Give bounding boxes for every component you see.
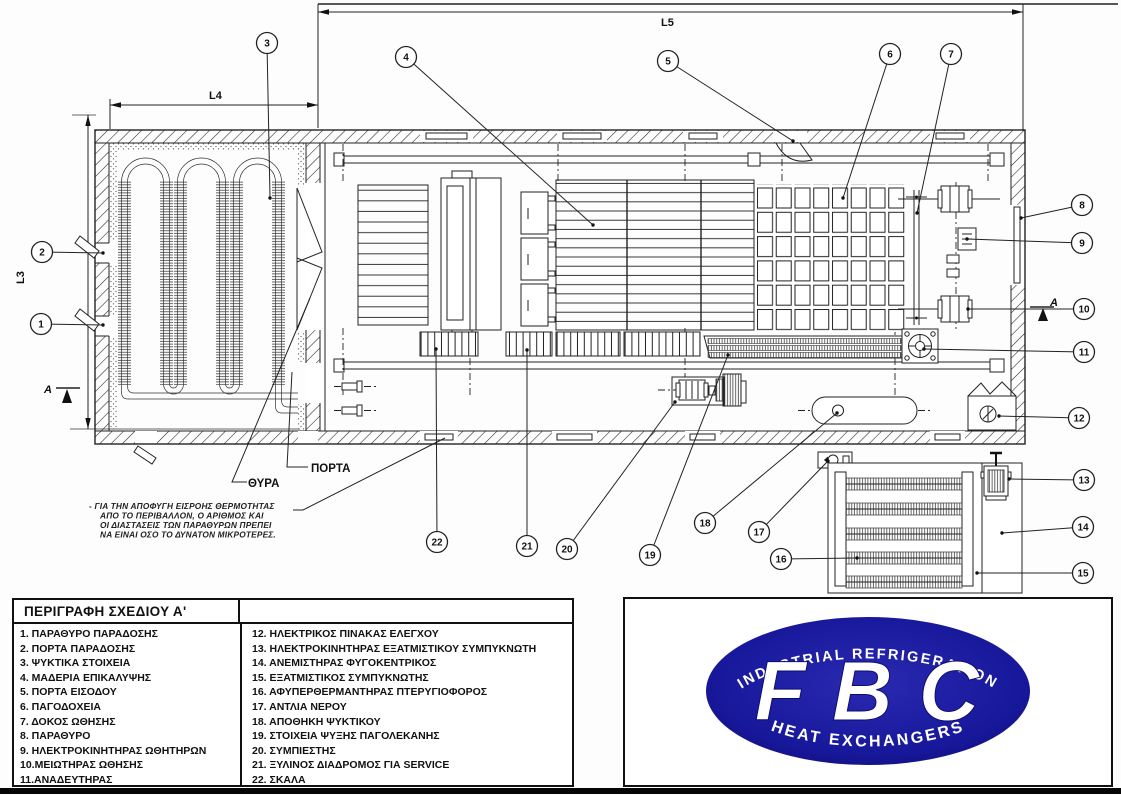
- cooling-coils: [118, 158, 298, 413]
- legend-title: ΠΕΡΙΓΡΑΦΗ ΣΧΕΔΙΟΥ Α': [14, 600, 240, 622]
- callout-number: 19: [644, 551, 656, 562]
- legend-item: 11.ΑΝΑΔΕΥΤΗΡΑΣ: [20, 773, 240, 788]
- legend-item: 18. ΑΠΟΘΗΚΗ ΨΥΚΤΙΚΟΥ: [252, 715, 572, 730]
- legend-item: 17. ΑΝΤΛΙΑ ΝΕΡΟΥ: [252, 700, 572, 715]
- callout-number: 17: [753, 528, 765, 539]
- coil-tubes: [122, 158, 299, 413]
- legend-body: 1. ΠΑΡΑΘΥΡΟ ΠΑΡΑΔΟΣΗΣ2. ΠΟΡΤΑ ΠΑΡΑΔΟΣΗΣ3…: [14, 624, 572, 787]
- legend-item: 2. ΠΟΡΤΑ ΠΑΡΑΔΟΣΗΣ: [20, 642, 240, 657]
- legend-item: 1. ΠΑΡΑΘΥΡΟ ΠΑΡΑΔΟΣΗΣ: [20, 627, 240, 642]
- coil-fin-columns: [118, 180, 285, 385]
- legend-right-list: 12. ΗΛΕΚΤΡΙΚΟΣ ΠΙΝΑΚΑΣ ΕΛΕΓΧΟΥ13. ΗΛΕΚΤΡ…: [242, 624, 572, 787]
- callout-number: 7: [948, 50, 954, 61]
- legend-item: 16. ΑΦΥΠΕΡΘΕΡΜΑΝΤΗΡΑΣ ΠΤΕΡΥΓΙΟΦΟΡΟΣ: [252, 685, 572, 700]
- legend-item: 3. ΨΥΚΤΙΚΑ ΣΤΟΙΧΕΙΑ: [20, 656, 240, 671]
- callout-number: 10: [1078, 305, 1090, 316]
- callout-number: 6: [887, 50, 893, 61]
- anchor-pins: [334, 381, 376, 416]
- ice-container-grid: [755, 184, 905, 332]
- legend-item: 22. ΣΚΑΛΑ: [252, 773, 572, 788]
- callout-number: 22: [431, 538, 443, 549]
- legend-item: 10.ΜΕΙΩΤΗΡΑΣ ΩΘΗΣΗΣ: [20, 758, 240, 773]
- legend-item: 5. ΠΟΡΤΑ ΕΙΣΟΔΟΥ: [20, 685, 240, 700]
- callout-number: 18: [699, 519, 711, 530]
- technical-drawing: L5 L4 L3: [0, 0, 1121, 596]
- condenser-motor: [981, 452, 1011, 500]
- tall-frame: [441, 171, 501, 337]
- callout-number: 8: [1079, 201, 1085, 212]
- legend-item: 21. ΞΥΛΙΝΟΣ ΔΙΑΔΡΟΜΟΣ ΓΙΑ SERVICE: [252, 758, 572, 773]
- hopper-boxes: [521, 192, 555, 326]
- callout-number: 11: [1079, 348, 1090, 359]
- service-walkway: [420, 332, 700, 356]
- ice-pan-cooling-strip: [704, 336, 903, 358]
- fbc-logo: INDUSTRIAL REFRIGERATION FBC HEAT EXCHAN…: [625, 599, 1111, 785]
- annotation-labels: ΘΥΡΑ ΠΟΡΤΑ - ΓΙΑ ΤΗΝ ΑΠΟΦΥΓΗ ΕΙΣΡΟΗΣ ΘΕΡ…: [89, 298, 445, 540]
- legend-item: 19. ΣΤΟΙΧΕΙΑ ΨΥΞΗΣ ΠΑΓΟΛΕΚΑΝΗΣ: [252, 729, 572, 744]
- scanned-drawing-page: L5 L4 L3: [0, 0, 1121, 795]
- callout-number: 12: [1073, 414, 1085, 425]
- note-line: ΑΠΟ ΤΟ ΠΕΡΙΒΑΛΛΟΝ, Ο ΑΡΙΘΜΟΣ ΚΑΙ: [99, 511, 264, 521]
- callout-number: 14: [1077, 523, 1089, 534]
- agitator: [902, 329, 938, 363]
- dim-l4: L4: [209, 90, 223, 102]
- legend-table: ΠΕΡΙΓΡΑΦΗ ΣΧΕΔΙΟΥ Α' 1. ΠΑΡΑΘΥΡΟ ΠΑΡΑΔΟΣ…: [12, 598, 574, 787]
- legend-item: 12. ΗΛΕΚΤΡΙΚΟΣ ΠΙΝΑΚΑΣ ΕΛΕΓΧΟΥ: [252, 627, 572, 642]
- callout-number: 20: [561, 545, 573, 556]
- callout-number: 21: [521, 542, 533, 553]
- legend-left-list: 1. ΠΑΡΑΘΥΡΟ ΠΑΡΑΔΟΣΗΣ2. ΠΟΡΤΑ ΠΑΡΑΔΟΣΗΣ3…: [14, 624, 242, 787]
- note-line: - ΓΙΑ ΤΗΝ ΑΠΟΦΥΓΗ ΕΙΣΡΟΗΣ ΘΕΡΜΟΤΗΤΑΣ: [89, 501, 275, 511]
- legend-item: 4. ΜΑΔΕΡΙΑ ΕΠΙΚΑΛΥΨΗΣ: [20, 671, 240, 686]
- section-letter: A: [43, 384, 52, 396]
- control-panel: [968, 382, 1016, 430]
- label-porta: ΠΟΡΤΑ: [311, 463, 350, 475]
- legend-header: ΠΕΡΙΓΡΑΦΗ ΣΧΕΔΙΟΥ Α': [14, 600, 572, 624]
- dim-l5: L5: [661, 17, 674, 29]
- scan-bottom-edge: [0, 788, 1121, 794]
- entrance-door: [773, 131, 812, 161]
- callout-number: 15: [1077, 569, 1089, 580]
- note-line: ΟΙ ΔΙΑΣΤΑΣΕΙΣ ΤΩΝ ΠΑΡΑΘΥΡΩΝ ΠΡΕΠΕΙ: [100, 520, 272, 530]
- ladder: [358, 185, 428, 325]
- legend-item: 8. ΠΑΡΑΘΥΡΟ: [20, 729, 240, 744]
- pusher-motor-top: [938, 186, 972, 212]
- label-thyra: ΘΥΡΑ: [248, 478, 279, 490]
- legend-item: 13. ΗΛΕΚΤΡΟΚΙΝΗΤΗΡΑΣ ΕΞΑΤΜΙΣΤΙΚΟΥ ΣΥΜΠΥΚ…: [252, 642, 572, 657]
- dim-l3: L3: [15, 271, 27, 284]
- evaporative-condenser: [828, 452, 1022, 593]
- callout-number: 3: [264, 39, 270, 50]
- logo-box: INDUSTRIAL REFRIGERATION FBC HEAT EXCHAN…: [623, 597, 1113, 787]
- compressor: [658, 374, 746, 406]
- callout-number: 4: [403, 53, 409, 64]
- covering-planks: [556, 180, 754, 330]
- callout-number: 1: [38, 320, 44, 331]
- legend-item: 15. ΕΞΑΤΜΙΣΤΙΚΟΣ ΣΥΜΠΥΚΝΩΤΗΣ: [252, 671, 572, 686]
- legend-item: 9. ΗΛΕΚΤΡΟΚΙΝΗΤΗΡΑΣ ΩΘΗΤΗΡΩΝ: [20, 744, 240, 759]
- callout-number: 5: [665, 57, 671, 68]
- callout-number: 16: [775, 555, 787, 566]
- legend-item: 20. ΣΥΜΠΙΕΣΤΗΣ: [252, 744, 572, 759]
- legend-item: 6. ΠΑΓΟΔΟΧΕΙΑ: [20, 700, 240, 715]
- callout-number: 13: [1078, 476, 1090, 487]
- legend-item: 7. ΔΟΚΟΣ ΩΘΗΣΗΣ: [20, 715, 240, 730]
- callout-number: 9: [1079, 239, 1085, 250]
- section-marker-left: A: [43, 384, 80, 403]
- external-units: [818, 452, 1022, 593]
- refrigerant-tank: [798, 397, 930, 424]
- note-line: ΝΑ ΕΙΝΑΙ ΟΣΟ ΤΟ ΔΥΝΑΤΟΝ ΜΙΚΡΟΤΕΡΕΣ.: [100, 530, 276, 540]
- legend-item: 14. ΑΝΕΜΙΣΤΗΡΑΣ ΦΥΓΟΚΕΝΤΡΙΚΟΣ: [252, 656, 572, 671]
- note-block: - ΓΙΑ ΤΗΝ ΑΠΟΦΥΓΗ ΕΙΣΡΟΗΣ ΘΕΡΜΟΤΗΤΑΣ ΑΠΟ…: [89, 501, 276, 540]
- callout-number: 2: [39, 248, 45, 259]
